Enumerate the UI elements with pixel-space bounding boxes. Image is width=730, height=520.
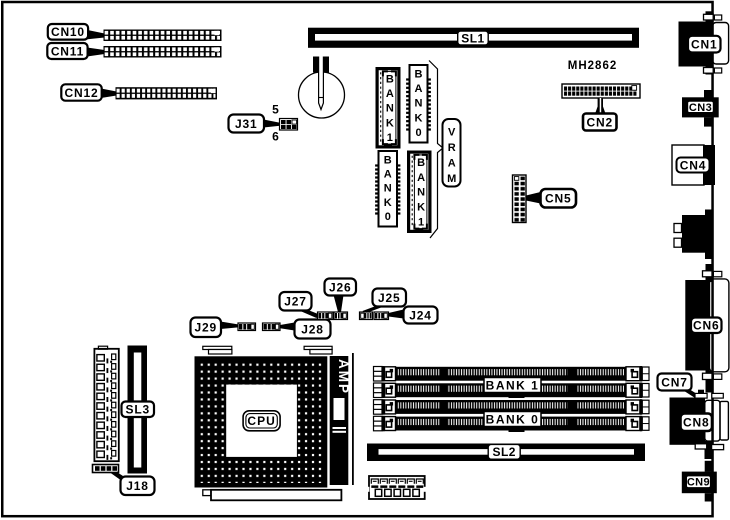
svg-text:1: 1 [418, 216, 424, 228]
svg-text:CN6: CN6 [693, 319, 719, 333]
svg-text:K: K [386, 117, 394, 129]
svg-text:6: 6 [272, 130, 279, 144]
svg-text:N: N [415, 98, 423, 110]
svg-text:J24: J24 [409, 308, 431, 322]
svg-text:CN2: CN2 [587, 115, 613, 129]
svg-text:A: A [448, 157, 456, 169]
svg-text:K: K [384, 197, 392, 209]
svg-text:J26: J26 [329, 280, 351, 294]
svg-text:A: A [415, 83, 423, 95]
svg-text:K: K [415, 112, 423, 124]
svg-text:CN7: CN7 [661, 375, 687, 389]
svg-text:M: M [447, 173, 456, 185]
svg-text:A: A [386, 88, 394, 100]
svg-text:5: 5 [272, 103, 279, 117]
svg-text:V: V [448, 126, 456, 138]
svg-text:SL2: SL2 [492, 445, 516, 459]
svg-text:J29: J29 [195, 321, 217, 335]
svg-text:B: B [417, 157, 425, 169]
svg-text:CN3: CN3 [689, 102, 712, 114]
svg-text:J25: J25 [378, 291, 400, 305]
svg-text:N: N [386, 103, 394, 115]
svg-text:0: 0 [385, 211, 391, 223]
svg-text:CN5: CN5 [545, 192, 571, 206]
svg-text:SL1: SL1 [461, 31, 485, 45]
svg-text:A: A [384, 169, 392, 181]
svg-text:A: A [417, 172, 425, 184]
svg-text:CN9: CN9 [687, 477, 710, 489]
svg-text:K: K [417, 202, 425, 214]
svg-text:J27: J27 [284, 295, 306, 309]
svg-text:CPU: CPU [247, 414, 275, 428]
svg-text:B: B [415, 68, 423, 80]
svg-text:MH2862: MH2862 [568, 60, 617, 72]
svg-text:AMP: AMP [336, 359, 351, 395]
svg-text:CN1: CN1 [691, 37, 717, 51]
svg-text:CN12: CN12 [65, 86, 99, 100]
svg-text:BANK 0: BANK 0 [486, 413, 540, 427]
svg-text:CN8: CN8 [683, 416, 709, 430]
svg-text:J18: J18 [126, 479, 148, 493]
svg-text:SL3: SL3 [126, 403, 150, 417]
svg-text:N: N [384, 183, 392, 195]
svg-text:0: 0 [415, 127, 421, 139]
svg-text:CN4: CN4 [680, 158, 706, 172]
svg-text:J31: J31 [235, 117, 257, 131]
svg-text:R: R [448, 142, 456, 154]
svg-text:N: N [417, 187, 425, 199]
svg-text:1: 1 [387, 132, 393, 144]
svg-text:J28: J28 [301, 322, 323, 336]
svg-text:B: B [386, 73, 394, 85]
svg-text:B: B [384, 154, 392, 166]
svg-text:BANK 1: BANK 1 [486, 379, 540, 393]
svg-text:CN11: CN11 [51, 44, 84, 58]
svg-text:CN10: CN10 [51, 25, 85, 39]
